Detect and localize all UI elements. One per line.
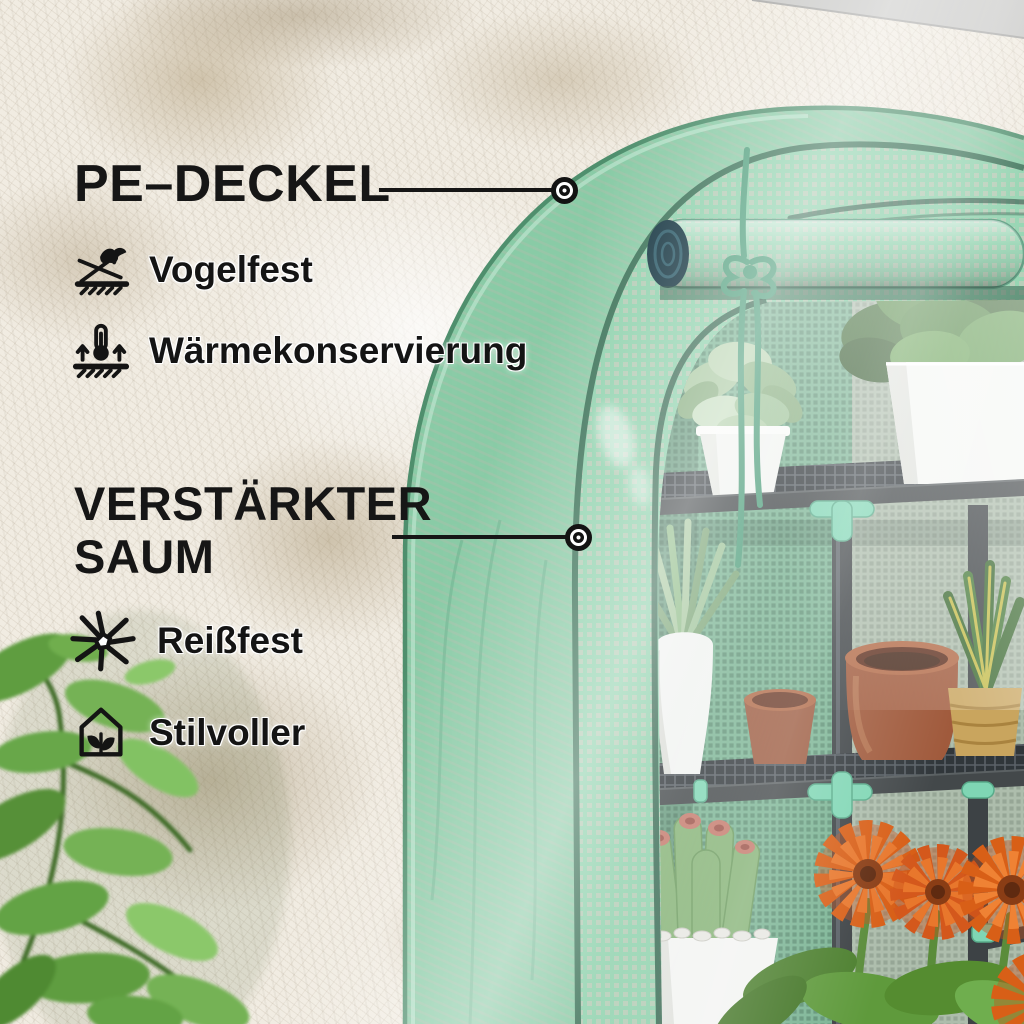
feature-stilvoller: Stilvoller xyxy=(70,702,305,764)
stylish-house-icon xyxy=(70,702,132,764)
product-image: PE–DECKEL Vogelfest xyxy=(0,0,1024,1024)
callout-target-pe-deckel xyxy=(551,177,578,204)
tear-resistant-icon xyxy=(66,604,140,678)
callout-line-pe-deckel xyxy=(379,188,552,192)
feature-label: Wärmekonservierung xyxy=(149,330,527,372)
feature-waermekonservierung: Wärmekonservierung xyxy=(70,320,527,382)
callout-title-verstaerkter-saum: VERSTÄRKTER SAUM xyxy=(74,478,434,583)
callout-line-verstaerkter-saum xyxy=(392,535,567,539)
callout-title-pe-deckel: PE–DECKEL xyxy=(74,156,391,213)
ceiling-corner xyxy=(752,0,1024,38)
heat-conservation-icon xyxy=(70,320,132,382)
bird-proof-icon xyxy=(72,240,132,300)
feature-reissfest: Reißfest xyxy=(66,604,303,678)
feature-label: Stilvoller xyxy=(149,712,305,754)
feature-label: Vogelfest xyxy=(149,249,313,291)
feature-vogelfest: Vogelfest xyxy=(72,240,313,300)
feature-label: Reißfest xyxy=(157,620,303,662)
callout-target-verstaerkter-saum xyxy=(565,524,592,551)
